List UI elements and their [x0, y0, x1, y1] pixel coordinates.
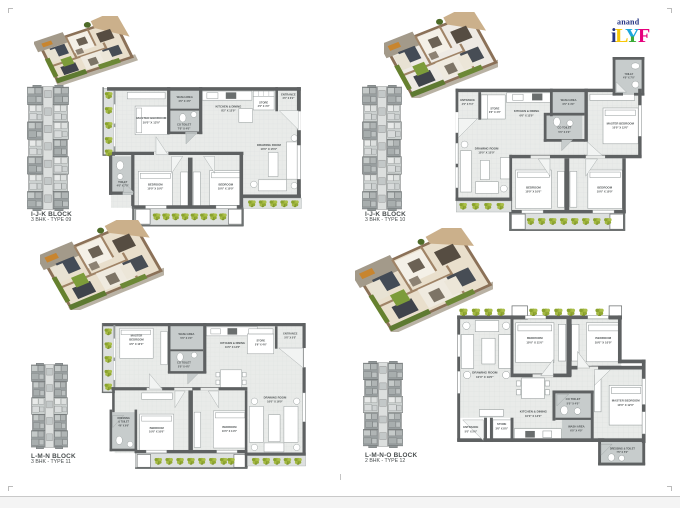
svg-text:CO TOILET: CO TOILET [566, 397, 581, 401]
svg-text:6'0" X 4'0": 6'0" X 4'0" [563, 103, 575, 106]
svg-text:BEDROOM: BEDROOM [527, 336, 543, 340]
svg-text:iLYF: iLYF [611, 25, 650, 47]
svg-text:& TOILET: & TOILET [118, 421, 129, 424]
svg-text:5'6" X 4'6": 5'6" X 4'6" [255, 343, 267, 346]
svg-text:MASTER BEDROOM: MASTER BEDROOM [612, 399, 640, 403]
svg-text:DRAWING ROOM: DRAWING ROOM [257, 143, 282, 147]
svg-text:10'0" X 15'0": 10'0" X 15'0" [260, 147, 277, 151]
svg-text:DRAWING ROOM: DRAWING ROOM [472, 371, 498, 375]
svg-text:BEDROOM: BEDROOM [526, 186, 541, 190]
svg-text:10'0" X 10'0": 10'0" X 10'0" [595, 340, 613, 344]
svg-text:7'6" X 5'0": 7'6" X 5'0" [617, 451, 629, 454]
svg-text:BEDROOM: BEDROOM [218, 183, 233, 187]
svg-text:4'0" X 4'0": 4'0" X 4'0" [258, 105, 270, 108]
svg-text:10'0" X 12'0": 10'0" X 12'0" [525, 414, 542, 418]
svg-text:TOILET: TOILET [624, 73, 633, 76]
svg-text:4'0" X 7'0": 4'0" X 7'0" [117, 185, 129, 188]
svg-text:4'0" X 6'2": 4'0" X 6'2" [282, 97, 294, 100]
svg-text:5'0" X 4'0": 5'0" X 4'0" [558, 131, 570, 134]
svg-text:KITCHEN & DINING: KITCHEN & DINING [216, 104, 242, 108]
svg-text:3'6" X 4'0": 3'6" X 4'0" [489, 111, 501, 114]
svg-text:DRAWING ROOM: DRAWING ROOM [475, 146, 499, 150]
svg-text:MASTER BEDROOM: MASTER BEDROOM [136, 116, 166, 120]
svg-text:DRESSING: DRESSING [118, 417, 130, 420]
svg-text:KITCHEN & DINING: KITCHEN & DINING [520, 410, 548, 414]
svg-text:10'0" X 12'0": 10'0" X 12'0" [617, 403, 634, 407]
svg-text:10'0" X 11'0": 10'0" X 11'0" [526, 340, 544, 344]
svg-text:BEDROOM: BEDROOM [597, 186, 612, 190]
svg-text:5'0" X 4'0": 5'0" X 4'0" [178, 365, 191, 368]
svg-text:BEDROOM: BEDROOM [595, 336, 611, 340]
svg-text:4'0" X 5'4": 4'0" X 5'4" [462, 103, 474, 106]
svg-text:BEDROOM: BEDROOM [148, 183, 163, 187]
svg-text:MASTER BEDROOM: MASTER BEDROOM [607, 122, 635, 126]
svg-text:DRESSING & TOILET: DRESSING & TOILET [610, 447, 636, 450]
svg-text:5'0" X 5'0": 5'0" X 5'0" [284, 336, 296, 339]
svg-text:10'0" X 19'0": 10'0" X 19'0" [476, 375, 494, 379]
svg-text:10'0" X 12'0": 10'0" X 12'0" [143, 121, 161, 125]
svg-text:5'0" X 4'0": 5'0" X 4'0" [180, 337, 193, 340]
svg-text:4'0" X 7'0": 4'0" X 7'0" [623, 77, 635, 80]
